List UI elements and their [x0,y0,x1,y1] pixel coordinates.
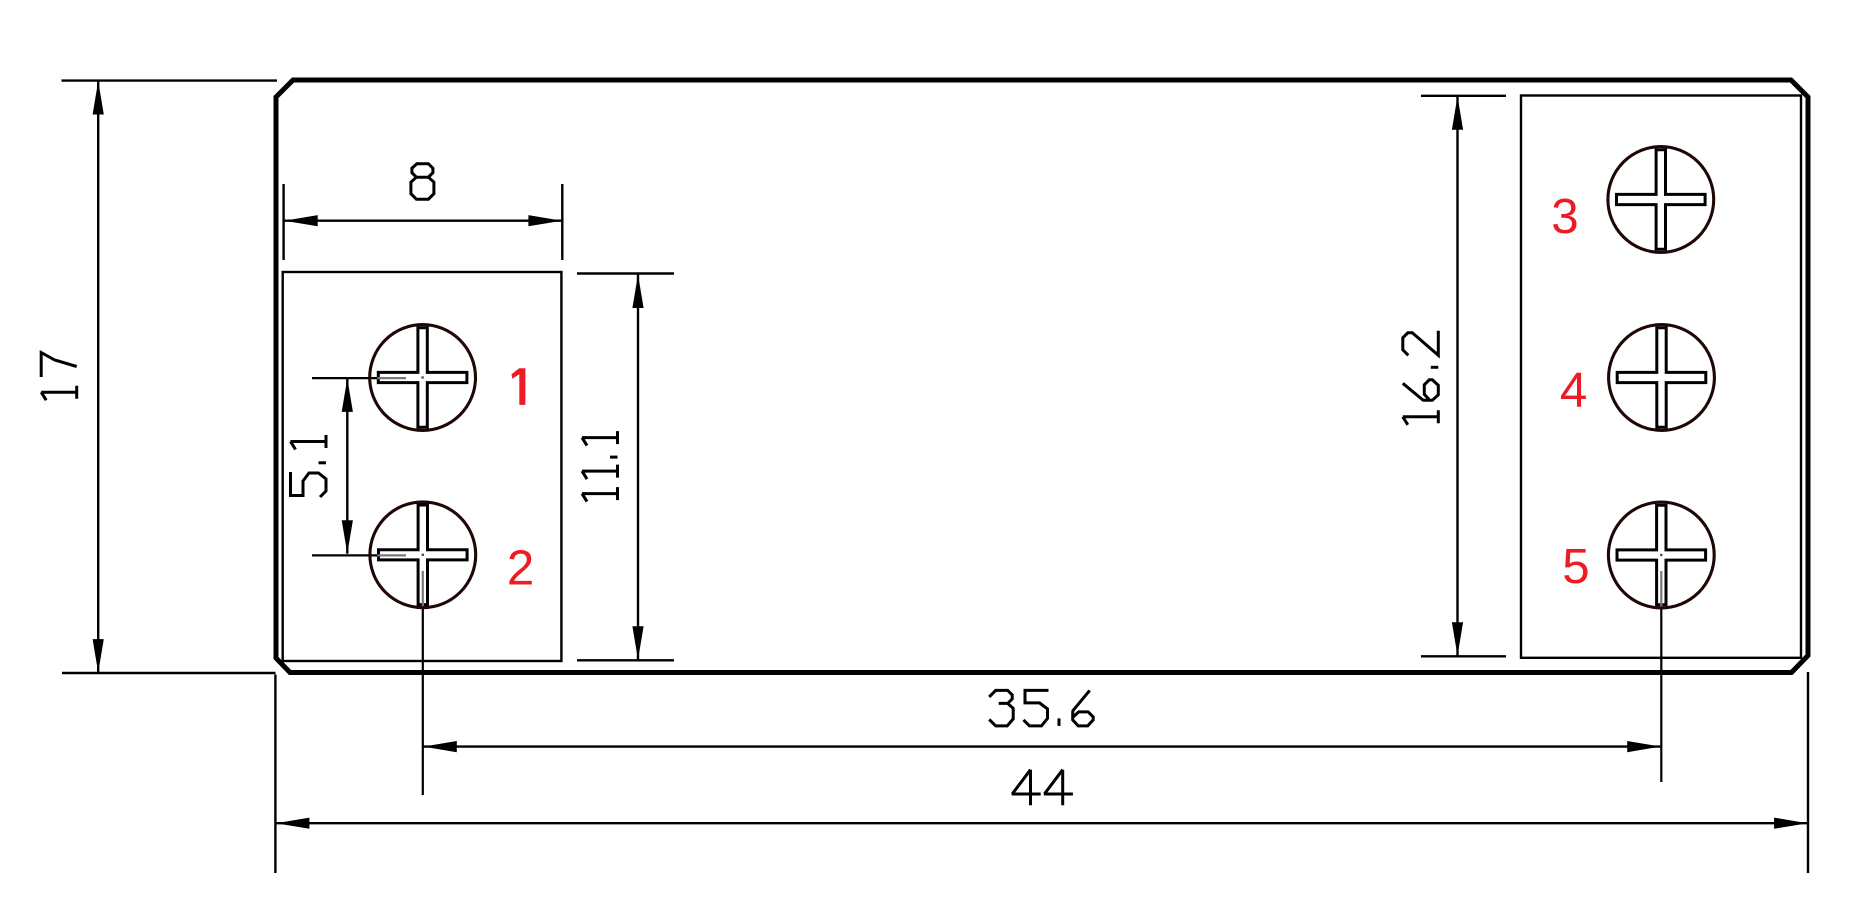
svg-text:5: 5 [1562,539,1589,594]
svg-text:4: 4 [1560,362,1587,417]
svg-text:2: 2 [507,541,534,596]
svg-text:3: 3 [1551,189,1578,244]
